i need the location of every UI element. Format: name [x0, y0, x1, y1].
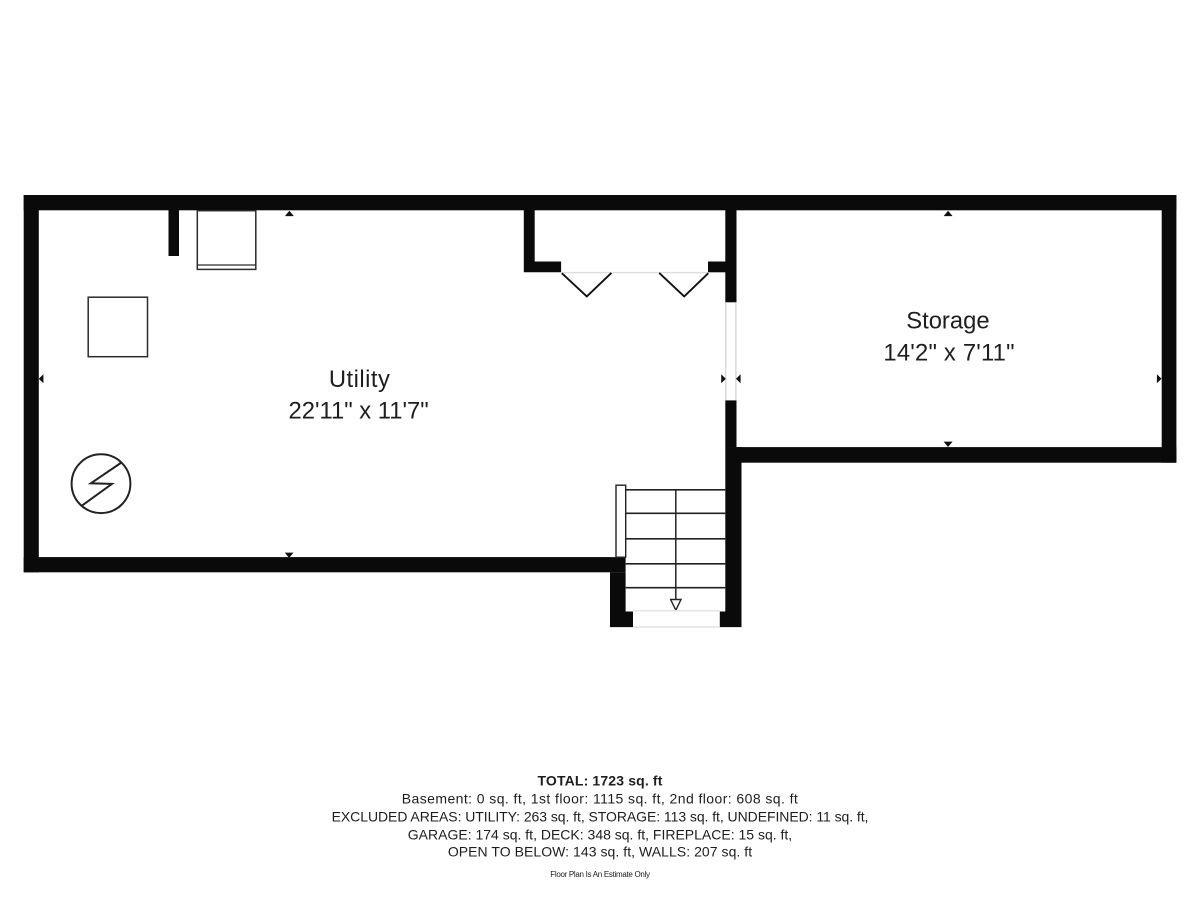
svg-text:Floor Plan Is An Estimate Only: Floor Plan Is An Estimate Only — [550, 870, 650, 879]
svg-text:Basement: 0 sq. ft, 1st floor:: Basement: 0 sq. ft, 1st floor: 1115 sq. … — [402, 791, 798, 807]
svg-text:22'11" x 11'7": 22'11" x 11'7" — [288, 398, 428, 425]
svg-text:GARAGE: 174 sq. ft, DECK: 348: GARAGE: 174 sq. ft, DECK: 348 sq. ft, FI… — [408, 826, 792, 842]
svg-text:Utility: Utility — [329, 366, 391, 393]
svg-text:Storage: Storage — [906, 308, 989, 335]
svg-text:14'2" x 7'11": 14'2" x 7'11" — [883, 339, 1014, 366]
svg-text:TOTAL: 1723 sq. ft: TOTAL: 1723 sq. ft — [537, 773, 662, 789]
svg-text:OPEN TO BELOW: 143 sq. ft, WAL: OPEN TO BELOW: 143 sq. ft, WALLS: 207 sq… — [448, 844, 752, 860]
svg-text:EXCLUDED AREAS: UTILITY: 263 s: EXCLUDED AREAS: UTILITY: 263 sq. ft, STO… — [332, 809, 869, 825]
